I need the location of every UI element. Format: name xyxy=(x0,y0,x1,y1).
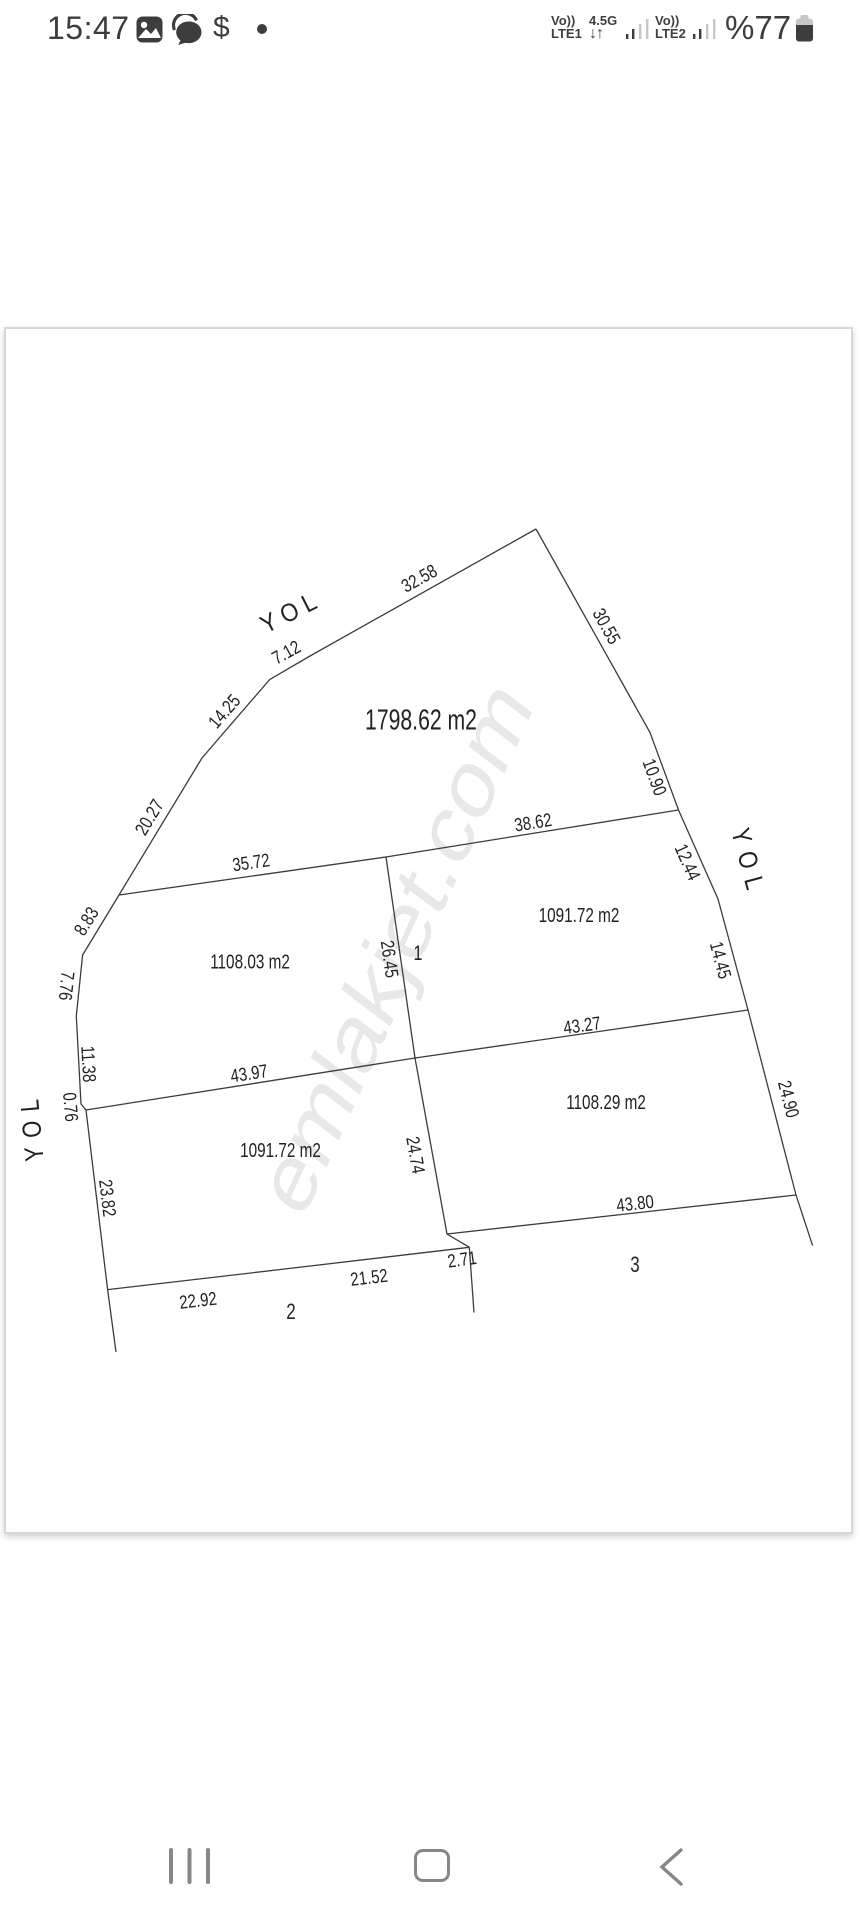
svg-text:22.92: 22.92 xyxy=(178,1288,218,1313)
svg-text:32.58: 32.58 xyxy=(398,560,441,597)
svg-text:YOL: YOL xyxy=(256,585,327,640)
svg-text:11.38: 11.38 xyxy=(77,1045,100,1082)
svg-text:14.25: 14.25 xyxy=(204,690,244,732)
svg-text:43.27: 43.27 xyxy=(562,1013,602,1039)
svg-text:30.55: 30.55 xyxy=(588,605,625,648)
svg-text:43.80: 43.80 xyxy=(615,1191,655,1216)
svg-text:10.90: 10.90 xyxy=(638,756,671,798)
svg-text:YOL: YOL xyxy=(725,825,772,901)
svg-text:24.90: 24.90 xyxy=(773,1078,803,1120)
svg-text:38.62: 38.62 xyxy=(513,809,553,836)
svg-text:3: 3 xyxy=(630,1253,639,1278)
svg-text:2.71: 2.71 xyxy=(446,1247,478,1272)
svg-text:YOL: YOL xyxy=(15,1089,50,1162)
svg-text:1: 1 xyxy=(414,941,423,965)
svg-text:1091.72 m2: 1091.72 m2 xyxy=(539,904,620,926)
svg-text:0.76: 0.76 xyxy=(59,1092,82,1123)
svg-text:8.83: 8.83 xyxy=(70,903,103,939)
svg-text:1108.29 m2: 1108.29 m2 xyxy=(566,1091,646,1113)
svg-text:21.52: 21.52 xyxy=(349,1265,389,1290)
svg-text:35.72: 35.72 xyxy=(231,850,271,876)
svg-text:1798.62 m2: 1798.62 m2 xyxy=(365,704,477,736)
svg-text:20.27: 20.27 xyxy=(131,796,168,839)
svg-text:1108.03 m2: 1108.03 m2 xyxy=(210,951,290,973)
svg-text:12.44: 12.44 xyxy=(670,841,704,884)
svg-text:23.82: 23.82 xyxy=(95,1178,120,1218)
svg-text:1091.72 m2: 1091.72 m2 xyxy=(240,1139,321,1161)
svg-text:2: 2 xyxy=(286,1300,295,1325)
svg-text:24.74: 24.74 xyxy=(402,1135,429,1176)
svg-text:7.12: 7.12 xyxy=(268,636,304,668)
svg-text:43.97: 43.97 xyxy=(229,1060,269,1086)
svg-text:7.76: 7.76 xyxy=(54,970,78,1001)
